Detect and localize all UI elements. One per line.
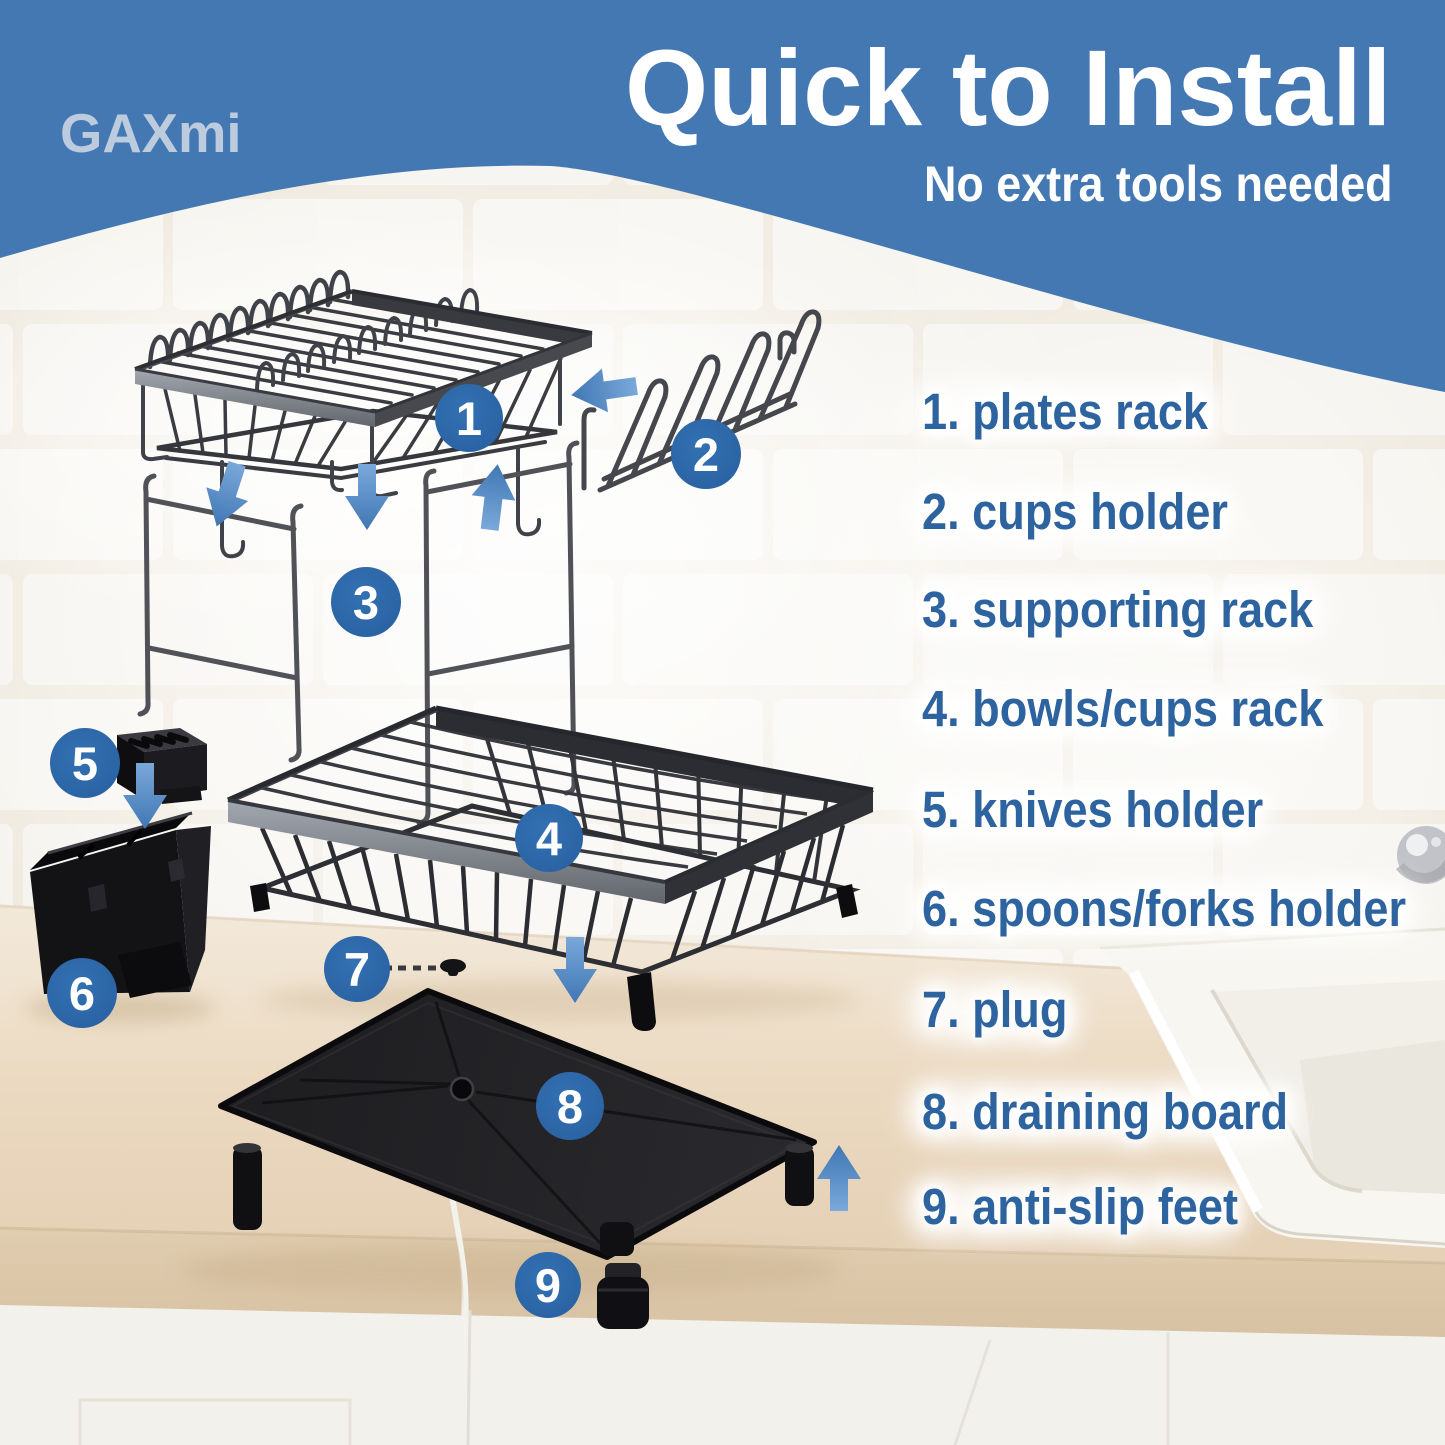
- svg-text:8: 8: [557, 1080, 583, 1133]
- svg-text:9: 9: [535, 1259, 561, 1312]
- svg-text:4: 4: [536, 812, 562, 865]
- svg-text:2: 2: [693, 428, 719, 481]
- svg-text:7: 7: [344, 943, 370, 996]
- svg-text:5: 5: [72, 737, 98, 790]
- svg-text:6: 6: [69, 967, 95, 1020]
- svg-text:3: 3: [353, 576, 379, 629]
- svg-text:1: 1: [456, 392, 482, 445]
